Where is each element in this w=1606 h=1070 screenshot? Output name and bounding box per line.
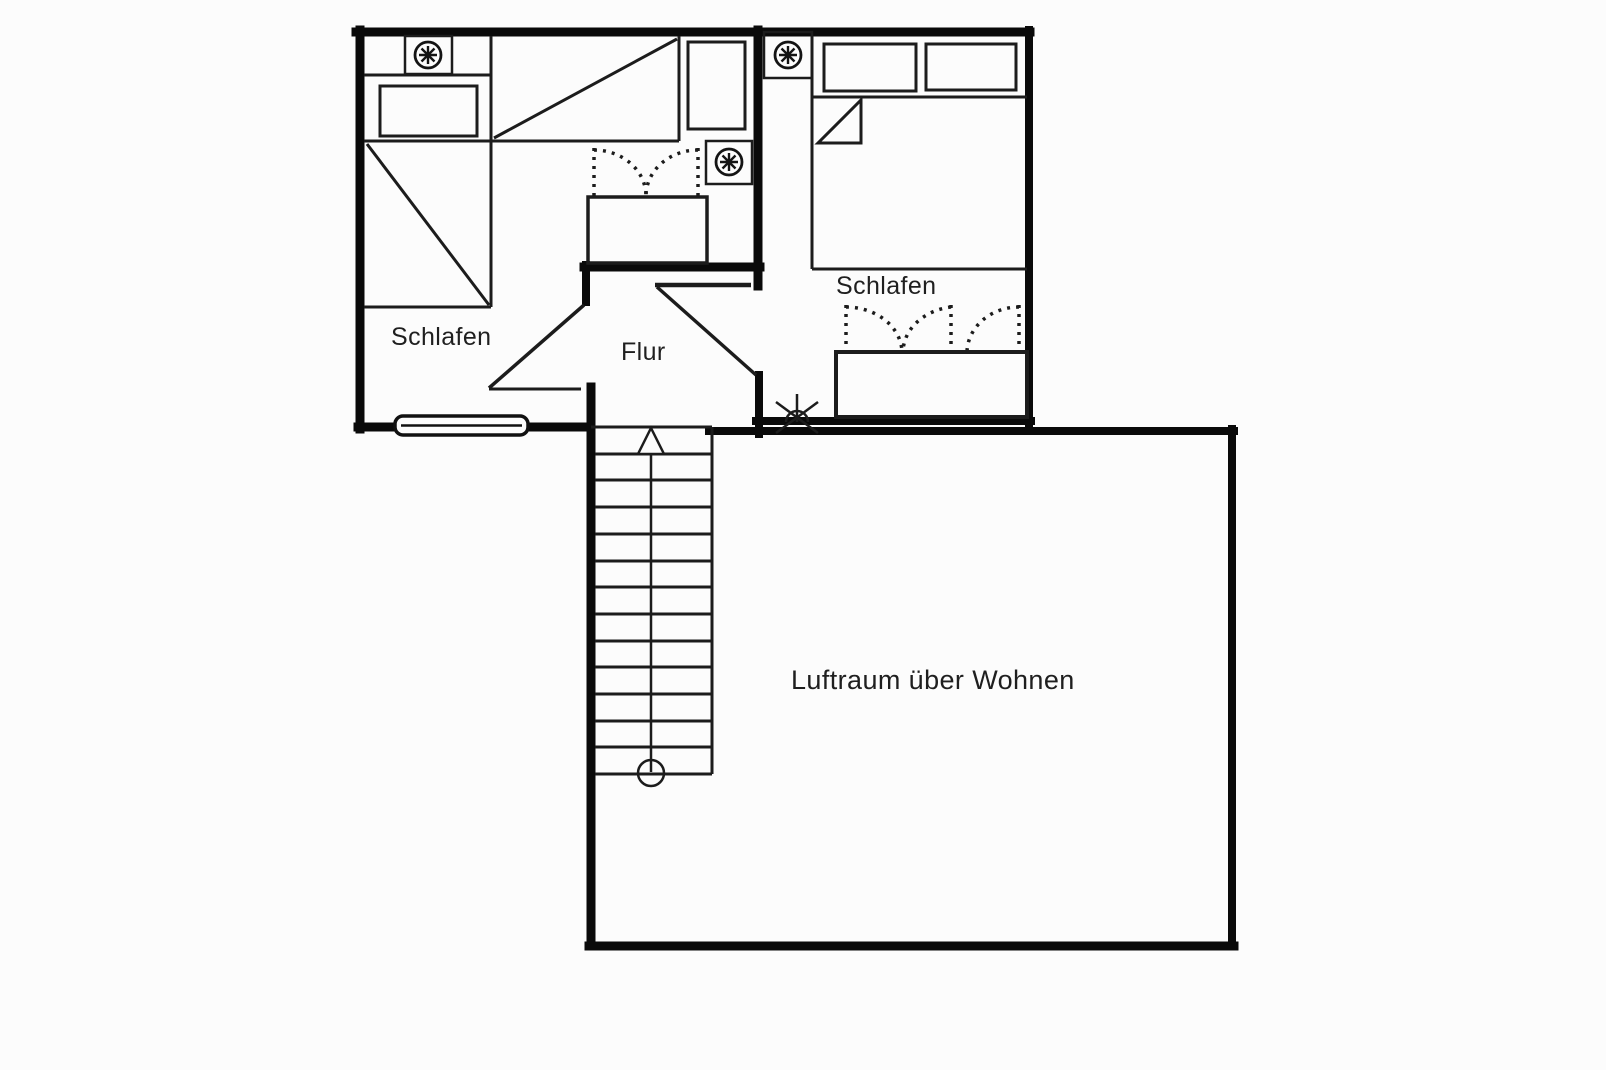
- ceiling-lamp: [405, 36, 452, 74]
- staircase: [591, 427, 712, 786]
- bed-double: [812, 36, 1027, 269]
- wardrobe-door-swing: [967, 307, 1019, 352]
- floor-plan-drawing: [0, 0, 1606, 1070]
- window-symbol: [395, 416, 528, 435]
- wardrobe-left: [588, 148, 707, 263]
- wardrobe-door-swing: [594, 150, 646, 196]
- wardrobe-body: [588, 197, 707, 263]
- bedroom-right-furniture: [812, 36, 1027, 417]
- wardrobe-door-swing: [903, 307, 951, 352]
- ceiling-lamp: [764, 32, 812, 78]
- blanket-fold: [818, 100, 861, 143]
- pillow: [824, 44, 916, 91]
- pillow: [926, 44, 1016, 90]
- nightstand: [688, 42, 745, 129]
- door-bedroom-left: [489, 305, 584, 389]
- wardrobe-body: [836, 352, 1027, 417]
- door-leaf: [657, 287, 756, 375]
- doors: [489, 285, 756, 389]
- blanket-diagonal: [494, 39, 677, 138]
- bedroom-right-label: Schlafen: [836, 274, 937, 299]
- bed-single-top: [494, 36, 679, 141]
- blanket-diagonal: [367, 144, 489, 305]
- void-above-living-label: Luftraum über Wohnen: [791, 667, 1075, 694]
- door-bedroom-right: [655, 285, 756, 375]
- pillow: [380, 86, 477, 136]
- stairs-up-arrow-icon: [638, 428, 664, 454]
- hallway-label: Flur: [621, 340, 666, 365]
- wardrobe-right: [836, 305, 1027, 417]
- wardrobe-door-swing: [846, 307, 902, 352]
- wardrobe-door-swing: [646, 150, 698, 196]
- floor-plan-page: Schlafen Flur Schlafen Luftraum über Woh…: [0, 0, 1606, 1070]
- walls: [356, 30, 1234, 946]
- ceiling-lamp: [706, 141, 752, 184]
- door-leaf: [489, 305, 584, 388]
- ceiling-lamps: [405, 32, 812, 184]
- bedroom-left-label: Schlafen: [391, 325, 492, 350]
